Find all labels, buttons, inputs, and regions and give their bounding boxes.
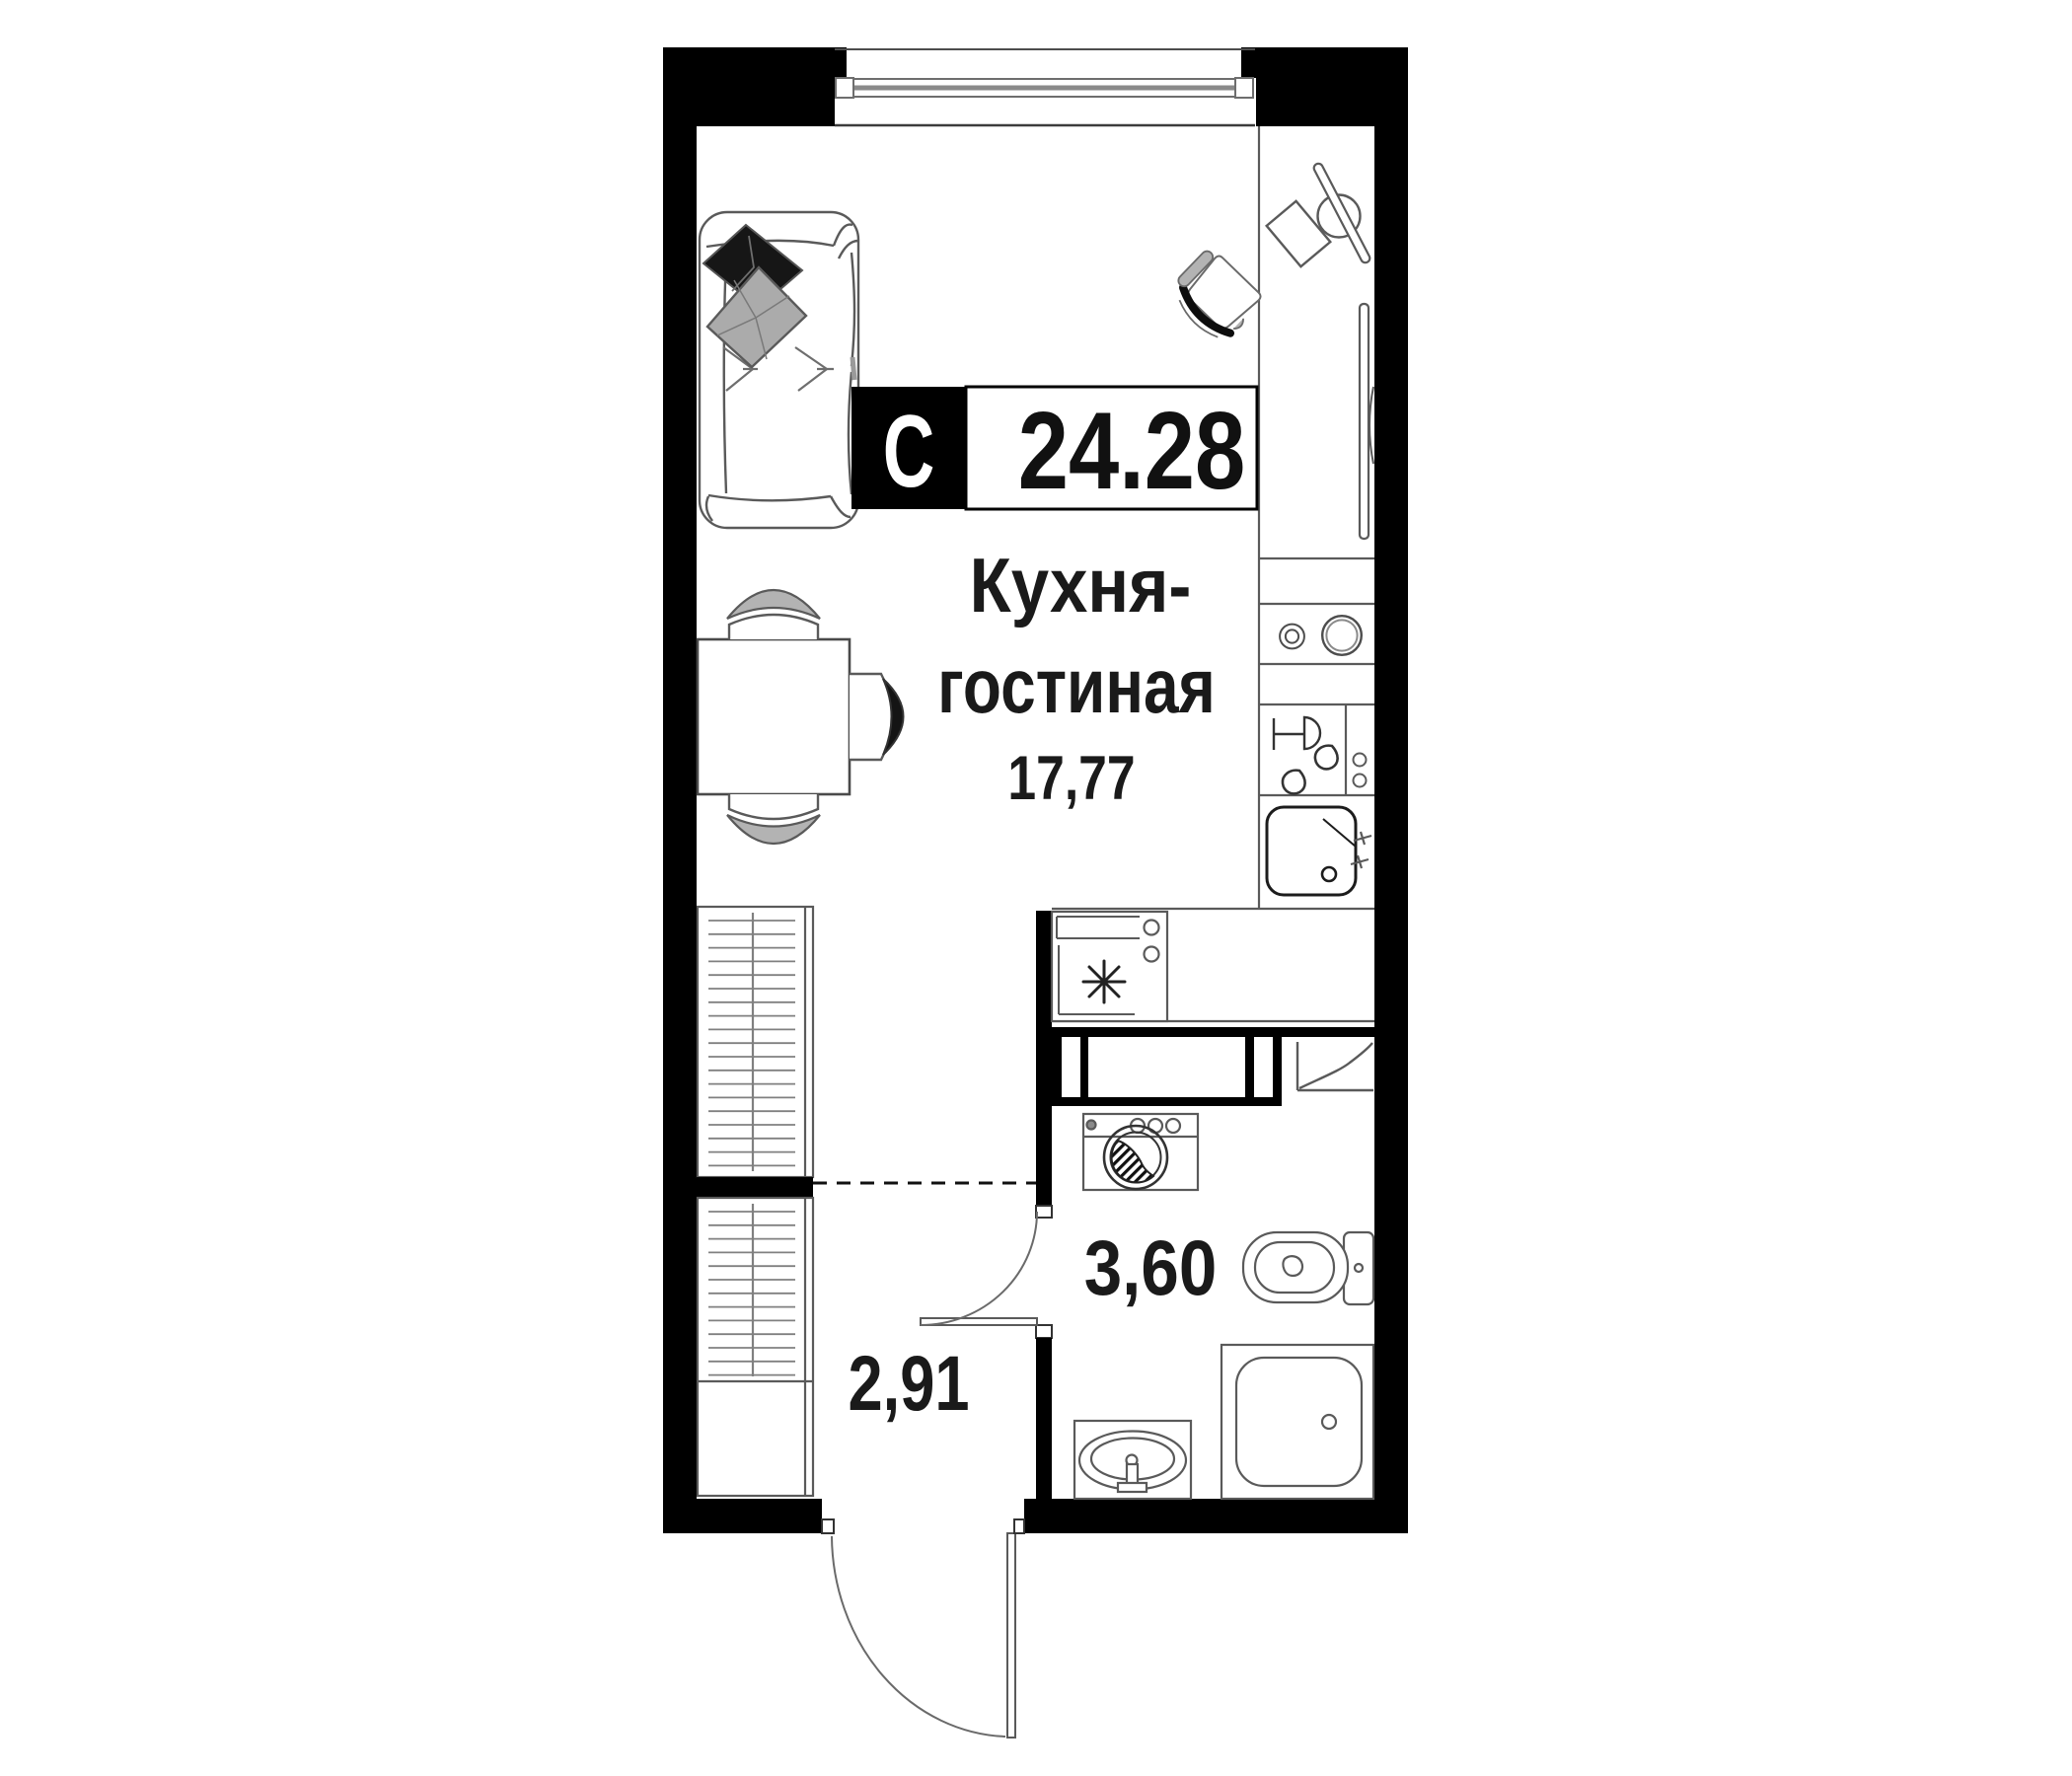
svg-text:2,91: 2,91	[849, 1340, 970, 1427]
svg-text:С: С	[883, 395, 935, 509]
svg-text:24.28: 24.28	[1018, 390, 1246, 512]
svg-text:гостиная: гостиная	[937, 643, 1216, 729]
svg-text:3,60: 3,60	[1084, 1224, 1218, 1311]
svg-text:17,77: 17,77	[1007, 744, 1135, 813]
svg-text:Кухня-: Кухня-	[970, 542, 1192, 629]
